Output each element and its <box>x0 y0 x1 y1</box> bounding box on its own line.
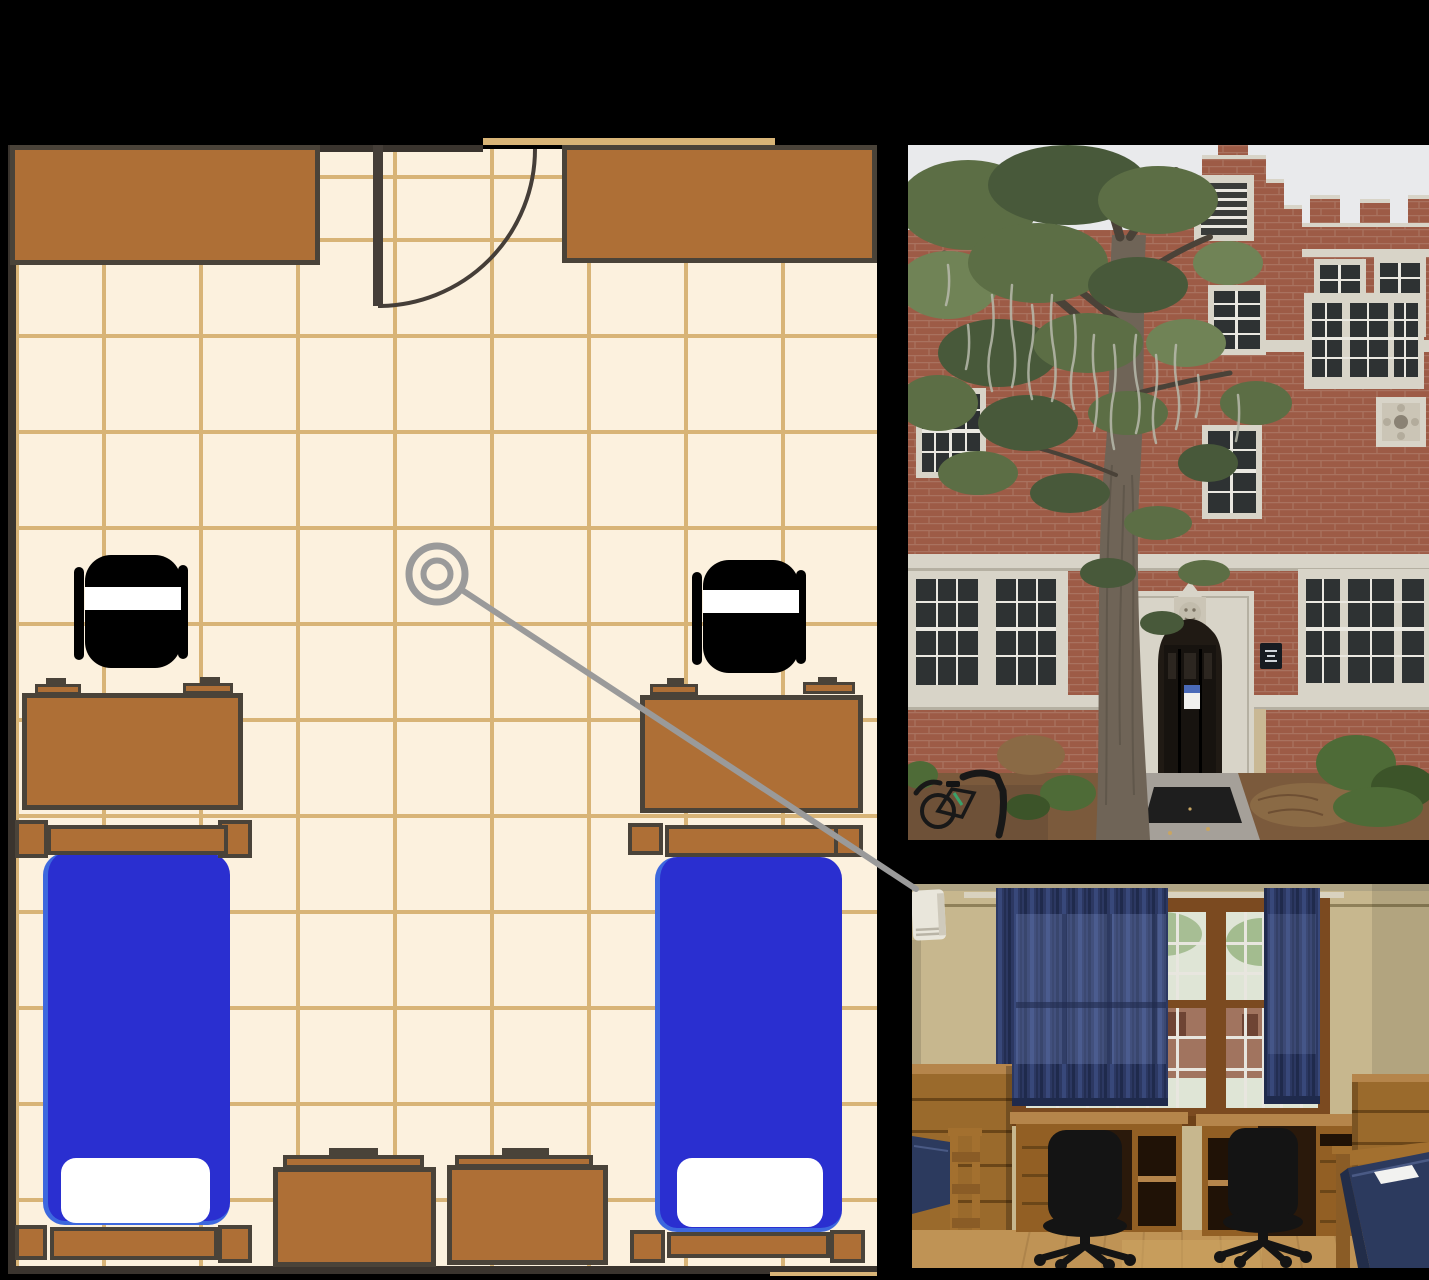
bay-window-upper <box>1304 293 1424 389</box>
desk-left <box>22 693 243 810</box>
bed-right-pillow <box>677 1158 823 1227</box>
ground-window-left <box>908 571 1068 695</box>
chair-left <box>85 555 181 668</box>
dorm-room-composite <box>0 0 1429 1280</box>
dresser-left <box>273 1167 436 1267</box>
stone-medallion <box>1376 397 1426 447</box>
curtain-right <box>1264 888 1320 1104</box>
chair-right-seat-gap <box>703 590 799 613</box>
bed-left-pillow <box>61 1158 210 1223</box>
interior-photo <box>912 884 1429 1268</box>
curtain-left <box>996 888 1168 1106</box>
bed-right-post <box>830 1230 865 1263</box>
bed-right-post <box>630 1230 665 1263</box>
bed-right-headboard <box>665 825 838 857</box>
chair-left-seat-gap <box>85 587 181 610</box>
desk-right-item <box>803 682 855 694</box>
bed-left-post <box>218 1225 252 1263</box>
bay-window-lower <box>1298 569 1429 709</box>
chair-right <box>703 560 799 673</box>
bush <box>1006 794 1050 820</box>
bed-left-post <box>15 1225 47 1260</box>
door-flyer <box>1184 685 1200 709</box>
bed-left-footboard <box>50 1227 218 1260</box>
doorway-opening-line <box>483 138 775 145</box>
bed-left-headboard <box>47 825 228 855</box>
chair-right-armrest <box>692 572 702 665</box>
bed-right-interior <box>1332 1142 1429 1268</box>
bed-right-post <box>628 823 663 855</box>
building-photo <box>908 145 1429 840</box>
ac-unit <box>912 889 946 941</box>
chair-left-armrest <box>74 567 84 660</box>
bed-right-footboard <box>667 1232 830 1258</box>
floorplan <box>8 145 877 1274</box>
bush <box>1333 787 1423 827</box>
door-mat <box>1144 787 1242 823</box>
dresser-right <box>447 1165 608 1265</box>
desk-right <box>640 695 863 813</box>
string-course <box>908 554 1429 570</box>
pine-straw <box>997 735 1065 775</box>
bed-left-post <box>15 820 48 858</box>
crenellated-parapet <box>1302 195 1429 257</box>
window-mullion <box>1206 912 1226 1108</box>
ceiling <box>912 884 1429 891</box>
desk-right-item <box>650 684 698 695</box>
